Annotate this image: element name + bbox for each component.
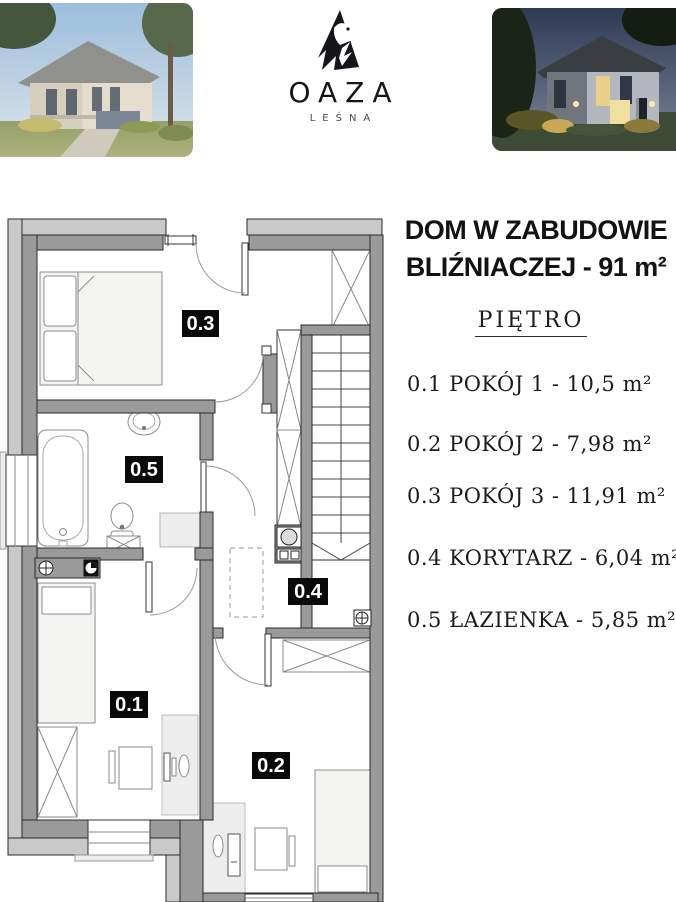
room-label-0-1: 0.1 [115,694,143,716]
page-title: DOM W ZABUDOWIE BLIŹNIACZEJ - 91 m² [400,212,672,286]
brand-subtitle: LEŚNA [266,113,414,124]
room-0-1-desk-unit [162,715,198,815]
brand-name: OAZA [266,76,414,109]
room-list-item-3: 0.3 POKÓJ 3 - 11,91 m² [407,484,666,508]
brand-logo: OAZA LEŚNA [266,8,414,124]
floor-plan: 0.3 0.5 0.1 0.4 0.2 [0,200,400,902]
photo-dusk-render [492,8,676,151]
floor-label: PIĘTRO [475,308,588,337]
dusk-render-illustration [492,8,676,151]
day-render-illustration [0,3,193,157]
room-label-0-4: 0.4 [294,581,323,603]
room-0-1-window-sill [75,855,153,861]
riser-symbol [84,560,98,576]
room-list-item-2: 0.2 POKÓJ 2 - 7,98 m² [407,432,652,456]
room-label-0-5: 0.5 [130,459,158,481]
bathroom-cabinet [160,513,200,547]
room-0-1-desk [109,747,152,789]
photo-day-render [0,3,193,157]
room-0-1-wardrobe [38,727,77,817]
floor-label-wrap: PIĘTRO [400,308,662,337]
room-0-2-wardrobe [283,640,370,672]
bedroom-0-3-bed [40,272,162,385]
room-list-item-5: 0.5 ŁAZIENKA - 5,85 m² [407,608,676,632]
balcony-sidelight-window [165,236,196,244]
bathroom-bathtub [38,430,88,546]
staircase [312,335,370,560]
room-label-0-3: 0.3 [187,313,215,335]
washer-dryer-unit [275,525,303,563]
room-list-item-1: 0.1 POKÓJ 1 - 10,5 m² [407,372,652,396]
utility-shaft [277,330,301,527]
room-0-1-window [88,820,150,855]
title-line-2: BLIŹNIACZEJ - 91 m² [400,249,672,286]
hall-wardrobe [332,250,370,328]
flyer-page: OAZA LEŚNA [0,0,676,902]
vent-symbol-corridor [354,610,371,626]
bathroom-window [6,455,37,546]
room-list-item-4: 0.4 KORYTARZ - 6,04 m² [407,546,676,570]
room-label-0-2: 0.2 [257,755,285,777]
room-0-2-bed [315,770,370,895]
vent-symbol-bathroom [39,561,53,575]
bathroom-window-sill [0,452,6,549]
brand-logo-icon [312,8,368,72]
room-0-1-bed [38,583,95,723]
title-line-1: DOM W ZABUDOWIE [400,212,672,249]
